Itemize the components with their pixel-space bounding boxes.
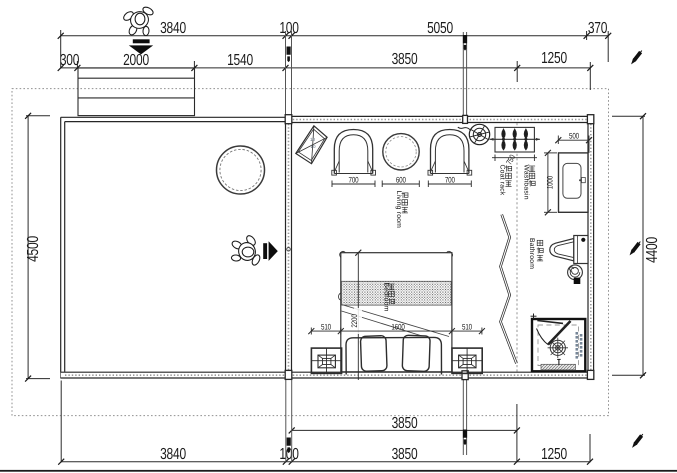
svg-text:2200: 2200: [350, 314, 359, 328]
svg-text:700: 700: [349, 175, 360, 184]
svg-text:Bathroom: Bathroom: [528, 238, 535, 269]
svg-text:700: 700: [445, 175, 456, 184]
svg-text:500: 500: [569, 132, 580, 141]
svg-text:100: 100: [279, 20, 299, 37]
svg-text:1000: 1000: [546, 175, 555, 189]
svg-text:300: 300: [60, 52, 80, 69]
svg-text:3850: 3850: [392, 415, 418, 432]
svg-text:Coat rack: Coat rack: [499, 165, 506, 196]
svg-text:1250: 1250: [541, 50, 567, 67]
svg-text:3850: 3850: [392, 446, 418, 463]
svg-text:2000: 2000: [123, 52, 149, 69]
svg-text:Washbasin: Washbasin: [523, 165, 530, 200]
svg-text:3840: 3840: [160, 446, 186, 463]
svg-text:10: 10: [310, 137, 316, 142]
svg-text:10: 10: [311, 144, 317, 149]
svg-text:1250: 1250: [541, 446, 567, 463]
svg-text:1540: 1540: [227, 52, 253, 69]
svg-text:Living room: Living room: [395, 191, 402, 228]
svg-text:5050: 5050: [427, 20, 453, 37]
svg-text:510: 510: [462, 322, 473, 331]
svg-text:4400: 4400: [644, 237, 661, 263]
svg-text:3850: 3850: [392, 51, 418, 68]
svg-text:4500: 4500: [25, 236, 42, 262]
svg-text:Bedroom: Bedroom: [382, 283, 389, 312]
svg-text:510: 510: [321, 322, 332, 331]
svg-text:3840: 3840: [160, 20, 186, 37]
svg-text:370: 370: [588, 20, 608, 37]
svg-text:600: 600: [396, 175, 407, 184]
svg-text:1600: 1600: [391, 322, 405, 331]
